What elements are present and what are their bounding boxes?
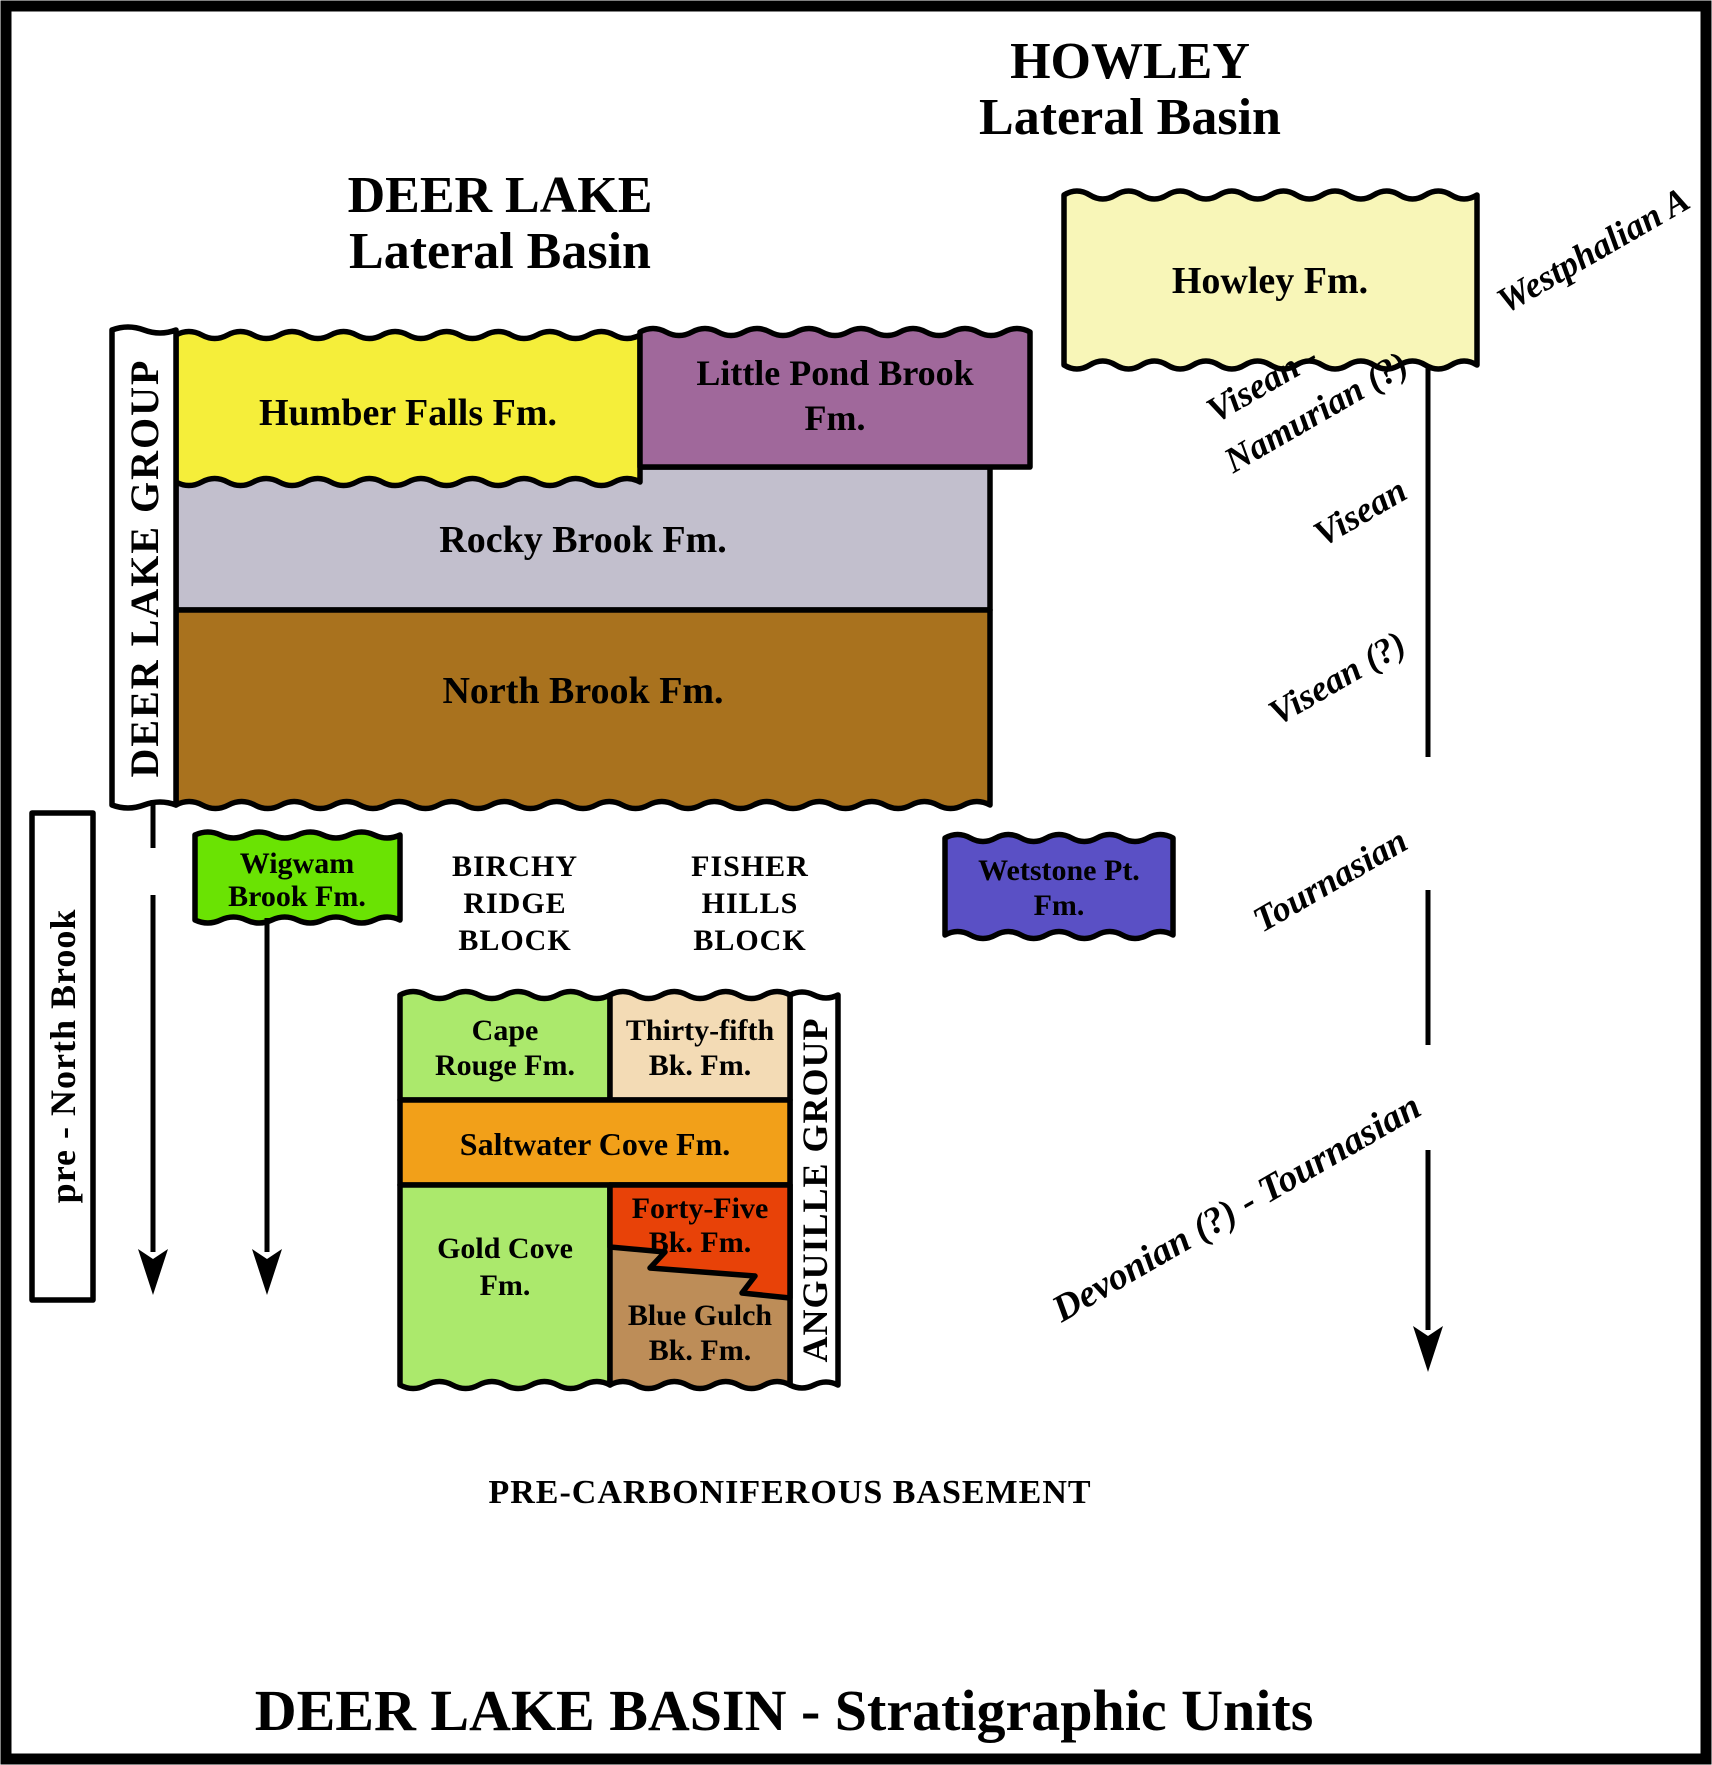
rocky-brook-formation-label: Rocky Brook Fm. <box>439 519 726 561</box>
time-label-westphalian-a: Westphalian A <box>1490 179 1696 321</box>
gold-cove-formation-label-line2: Fm. <box>480 1269 531 1302</box>
pre-carboniferous-basement-label: PRE-CARBONIFEROUS BASEMENT <box>488 1474 1091 1511</box>
wigwam-time-arrow <box>252 918 282 1295</box>
thirty-fifth-formation-label-line1: Thirty-fifth <box>626 1014 775 1047</box>
birchy-ridge-block-label-line1: BIRCHY <box>452 850 578 883</box>
gold-cove-formation-label-line1: Gold Cove <box>437 1232 573 1265</box>
deer-lake-basin-header-line2: Lateral Basin <box>349 223 651 280</box>
wetstone-formation-label-line2: Fm. <box>1034 889 1085 922</box>
howley-basin-header-line1: HOWLEY <box>1010 33 1250 90</box>
north-brook-formation-label: North Brook Fm. <box>442 670 723 712</box>
wigwam-formation-label-line2: Brook Fm. <box>228 880 366 913</box>
pre-north-brook-label: pre - North Brook <box>43 909 83 1204</box>
thirty-fifth-formation-label-line2: Bk. Fm. <box>649 1049 752 1082</box>
wigwam-formation-label-line1: Wigwam <box>240 847 354 880</box>
deer-lake-basin-header-line1: DEER LAKE <box>348 167 653 224</box>
saltwater-formation-label: Saltwater Cove Fm. <box>460 1126 730 1162</box>
fisher-hills-block-label-line1: FISHER <box>691 850 809 883</box>
time-label-visean: Visean <box>1307 470 1414 555</box>
howley-formation-label: Howley Fm. <box>1172 260 1368 302</box>
deer-lake-group-label: DEER LAKE GROUP <box>122 359 167 778</box>
birchy-ridge-block-label-line2: RIDGE <box>463 887 566 920</box>
howley-basin-header-line2: Lateral Basin <box>979 89 1281 146</box>
little-pond-formation-label-line2: Fm. <box>805 398 866 438</box>
forty-five-formation-label-line1: Forty-Five <box>632 1192 769 1225</box>
blue-gulch-formation-label-line2: Bk. Fm. <box>649 1334 752 1367</box>
blue-gulch-formation-label-line1: Blue Gulch <box>628 1299 773 1332</box>
time-label-visean-query: Visean (?) <box>1262 623 1413 733</box>
little-pond-formation-label-line1: Little Pond Brook <box>696 353 973 393</box>
stratigraphic-diagram: DEER LAKE Lateral Basin HOWLEY Lateral B… <box>0 0 1712 1765</box>
fisher-hills-block-label-line3: BLOCK <box>693 924 806 957</box>
forty-five-formation-label-line2: Bk. Fm. <box>649 1226 752 1259</box>
cape-rouge-formation-label-line1: Cape <box>472 1014 539 1047</box>
pre-north-brook-time-arrow <box>138 800 168 1295</box>
anguille-group-label: ANGUILLE GROUP <box>795 1017 835 1362</box>
birchy-ridge-block-label-line3: BLOCK <box>458 924 571 957</box>
time-label-devonian-tournasian: Devonian (?) - Tournasian <box>1044 1085 1428 1331</box>
humber-falls-formation-label: Humber Falls Fm. <box>259 392 557 434</box>
diagram-canvas: DEER LAKE Lateral Basin HOWLEY Lateral B… <box>0 0 1712 1765</box>
diagram-title: DEER LAKE BASIN - Stratigraphic Units <box>255 1678 1314 1743</box>
wetstone-formation-label-line1: Wetstone Pt. <box>978 854 1140 887</box>
cape-rouge-formation-label-line2: Rouge Fm. <box>435 1049 575 1082</box>
howley-dashed-time-arrow <box>1413 365 1443 1372</box>
time-label-tournasian: Tournasian <box>1246 820 1414 940</box>
fisher-hills-block-label-line2: HILLS <box>702 887 799 920</box>
